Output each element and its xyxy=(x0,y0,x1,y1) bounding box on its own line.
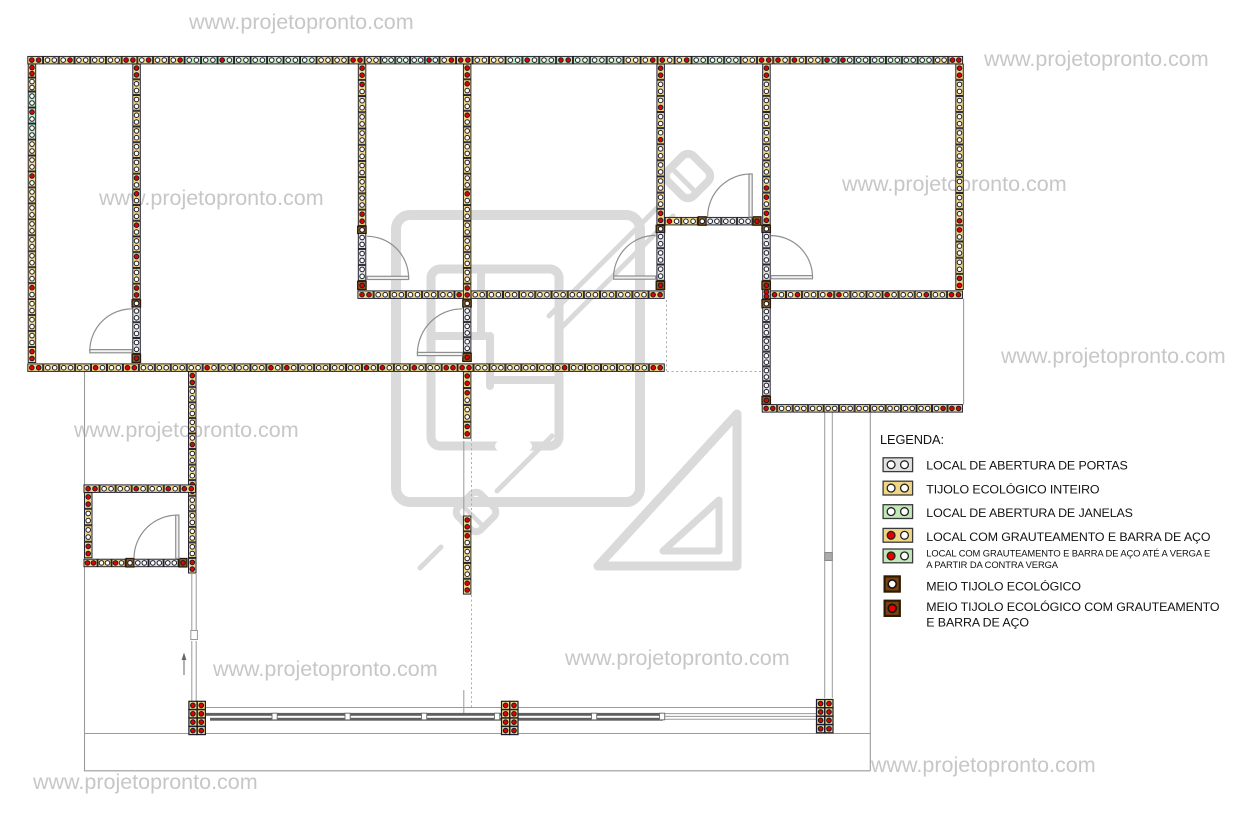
svg-text:LOCAL COM GRAUTEAMENTO E BARRA: LOCAL COM GRAUTEAMENTO E BARRA DE AÇO xyxy=(926,530,1211,544)
svg-text:www.projetopronto.com: www.projetopronto.com xyxy=(841,172,1067,196)
svg-text:www.projetopronto.com: www.projetopronto.com xyxy=(73,418,299,442)
svg-text:www.projetopronto.com: www.projetopronto.com xyxy=(983,47,1209,71)
svg-text:www.projetopronto.com: www.projetopronto.com xyxy=(188,10,414,34)
svg-text:E BARRA DE AÇO: E BARRA DE AÇO xyxy=(926,615,1029,629)
svg-text:www.projetopronto.com: www.projetopronto.com xyxy=(32,770,258,794)
svg-text:www.projetopronto.com: www.projetopronto.com xyxy=(98,186,324,210)
svg-text:www.projetopronto.com: www.projetopronto.com xyxy=(212,657,438,681)
svg-text:MEIO TIJOLO ECOLÓGICO COM GRAU: MEIO TIJOLO ECOLÓGICO COM GRAUTEAMENTO xyxy=(926,599,1220,614)
svg-text:LOCAL DE ABERTURA DE JANELAS: LOCAL DE ABERTURA DE JANELAS xyxy=(926,506,1133,520)
svg-text:LOCAL DE ABERTURA DE PORTAS: LOCAL DE ABERTURA DE PORTAS xyxy=(926,459,1127,473)
svg-text:A PARTIR DA CONTRA VERGA: A PARTIR DA CONTRA VERGA xyxy=(926,559,1059,570)
svg-text:www.projetopronto.com: www.projetopronto.com xyxy=(870,753,1096,777)
svg-text:MEIO TIJOLO ECOLÓGICO: MEIO TIJOLO ECOLÓGICO xyxy=(926,579,1081,594)
svg-text:LEGENDA:: LEGENDA: xyxy=(880,432,944,447)
svg-text:www.projetopronto.com: www.projetopronto.com xyxy=(1000,344,1226,368)
svg-text:TIJOLO ECOLÓGICO INTEIRO: TIJOLO ECOLÓGICO INTEIRO xyxy=(926,481,1100,496)
svg-text:www.projetopronto.com: www.projetopronto.com xyxy=(564,646,790,670)
svg-text:LOCAL COM GRAUTEAMENTO E BARRA: LOCAL COM GRAUTEAMENTO E BARRA DE AÇO AT… xyxy=(926,547,1210,558)
